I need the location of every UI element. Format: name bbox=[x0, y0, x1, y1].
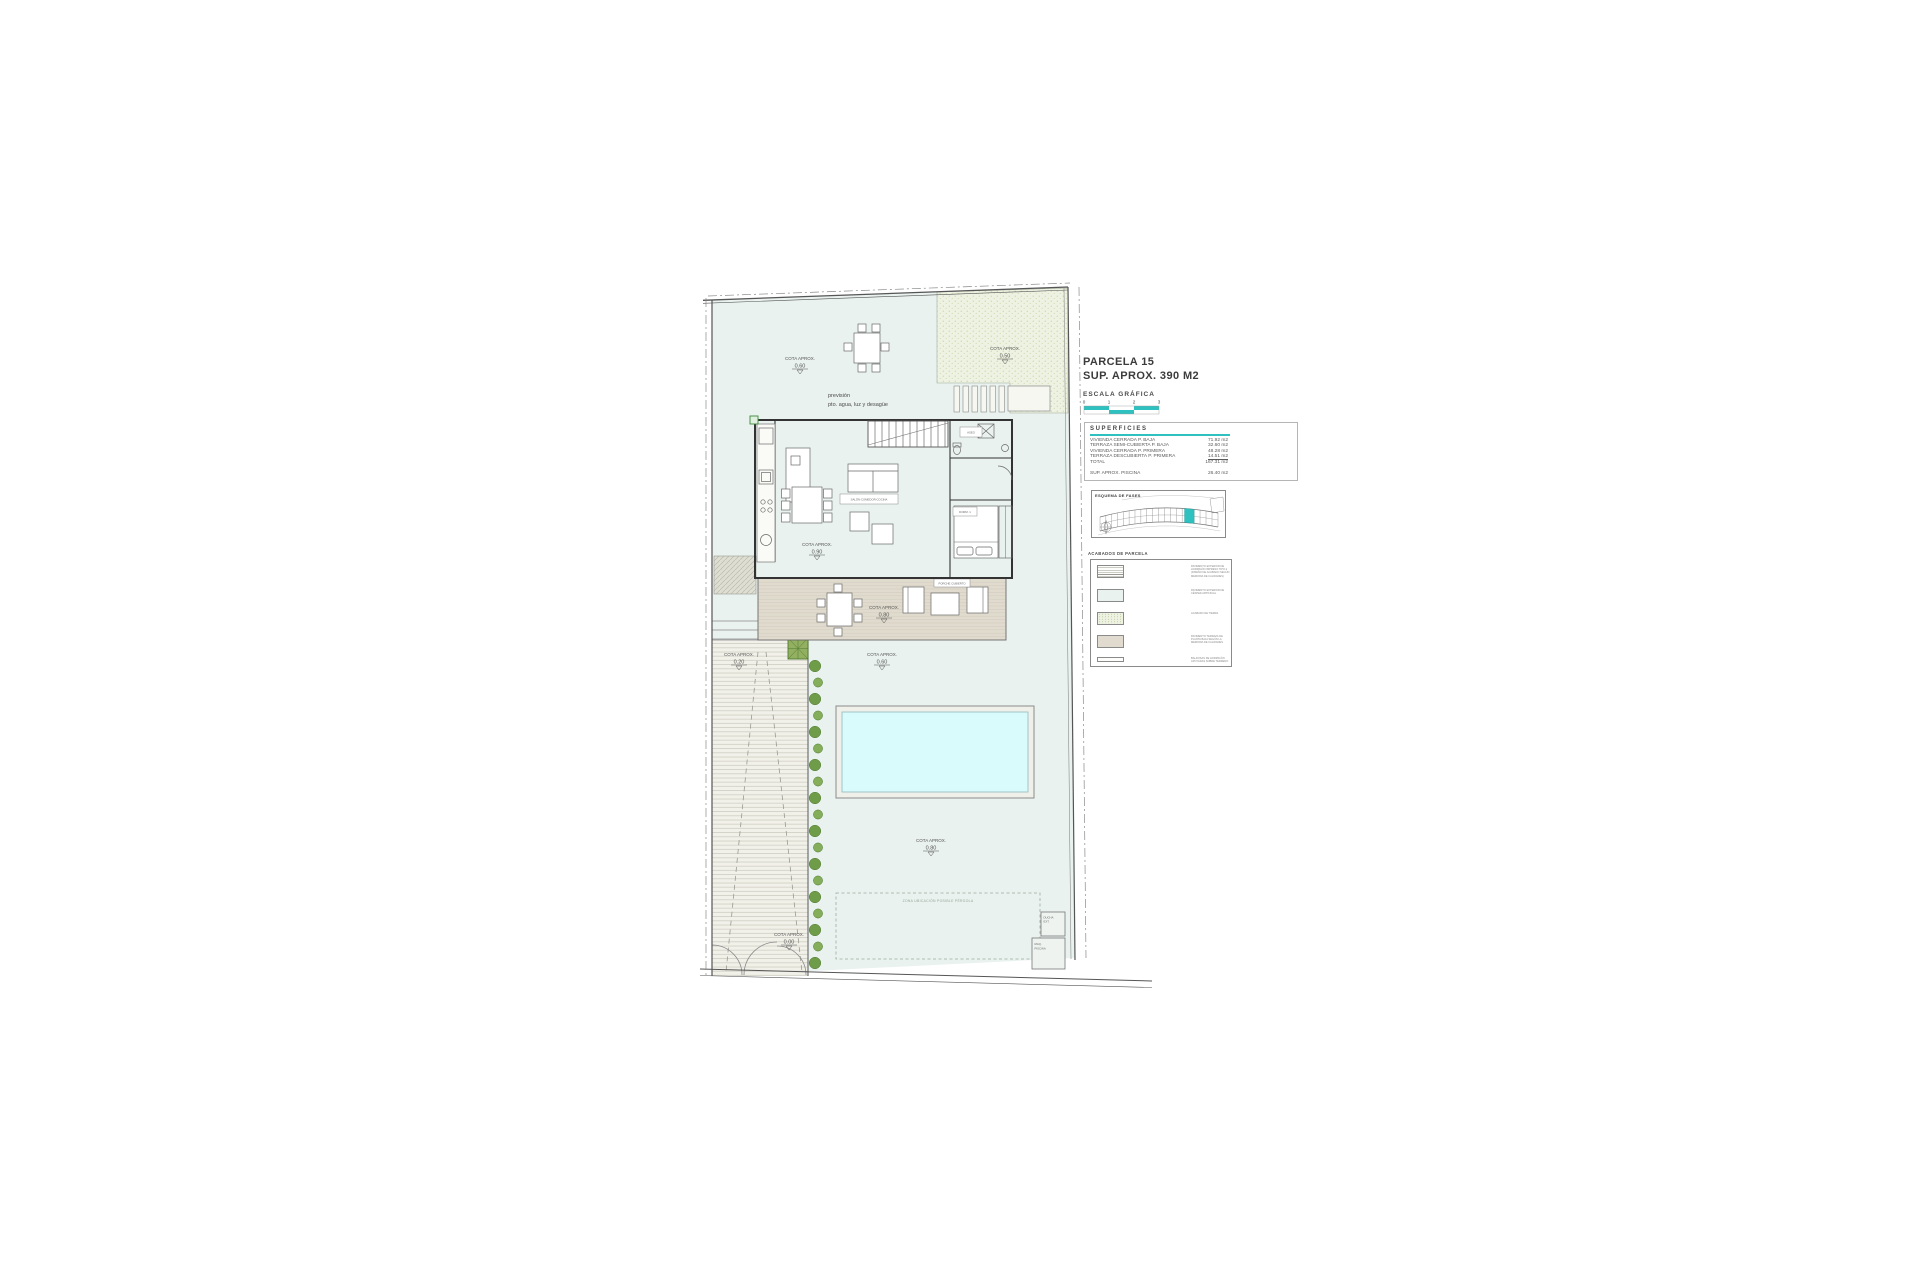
maq-piscina-box: MAQ. PISCINA bbox=[1032, 938, 1065, 969]
chair bbox=[872, 324, 880, 332]
hedge-bush bbox=[809, 660, 821, 672]
legend-swatch-terraza bbox=[1097, 635, 1124, 648]
hedge-bush bbox=[809, 858, 821, 870]
hedge-bush bbox=[813, 744, 822, 753]
svg-text:3: 3 bbox=[1158, 400, 1161, 405]
coffee-table bbox=[850, 512, 869, 531]
chair bbox=[782, 513, 791, 522]
svg-text:SALÓN-COMEDOR-COCINA: SALÓN-COMEDOR-COCINA bbox=[851, 497, 888, 502]
hedge-bush bbox=[813, 678, 822, 687]
legend-heading: ACABADOS DE PARCELA bbox=[1088, 551, 1148, 556]
sheet: ZONA UBICACIÓN POSIBLE PÉRGOLA DUCHA EXT… bbox=[0, 0, 1920, 1280]
legend-swatch-hormigon bbox=[1097, 565, 1124, 578]
svg-text:previsión: previsión bbox=[828, 393, 850, 399]
svg-text:MAQ.: MAQ. bbox=[1035, 942, 1042, 946]
legend: PAVIMENTO EXTERIOR DE HORMIGÓN IMPRESO T… bbox=[1090, 559, 1232, 667]
svg-text:0.00: 0.00 bbox=[784, 940, 795, 946]
hedge-bush bbox=[813, 810, 822, 819]
hedge-bush bbox=[809, 891, 821, 903]
svg-text:ASEO: ASEO bbox=[967, 431, 976, 435]
svg-text:PORCHE CUBIERTO: PORCHE CUBIERTO bbox=[938, 581, 966, 585]
hedge-bush bbox=[813, 843, 822, 852]
location-map: ESQUEMA DE FASES bbox=[1091, 490, 1226, 538]
svg-text:0.20: 0.20 bbox=[734, 660, 745, 666]
chair bbox=[782, 489, 791, 498]
svg-text:DORM. 1: DORM. 1 bbox=[959, 510, 971, 514]
chair bbox=[817, 614, 825, 622]
chair bbox=[872, 364, 880, 372]
chair bbox=[858, 364, 866, 372]
chair bbox=[834, 584, 842, 592]
porch-label-box: PORCHE CUBIERTO bbox=[934, 579, 970, 587]
svg-text:COTA APROX.: COTA APROX. bbox=[869, 605, 899, 610]
svg-text:PISCINA: PISCINA bbox=[1035, 947, 1046, 951]
entry-pad bbox=[954, 386, 960, 412]
pergola-zone-label: ZONA UBICACIÓN POSIBLE PÉRGOLA bbox=[903, 898, 974, 903]
hedge-bush bbox=[813, 711, 822, 720]
entry-pad bbox=[963, 386, 969, 412]
svg-text:pto. agua, luz y desagüe: pto. agua, luz y desagüe bbox=[828, 402, 888, 408]
svg-text:0.60: 0.60 bbox=[877, 660, 888, 666]
hedge-bush bbox=[809, 693, 821, 705]
legend-swatch-cesped bbox=[1097, 589, 1124, 602]
superficies-rule bbox=[1090, 434, 1230, 437]
hedge-bush bbox=[809, 924, 821, 936]
hedge-bush bbox=[809, 759, 821, 771]
entry-pad-large bbox=[1008, 386, 1050, 411]
kitchen bbox=[757, 424, 775, 562]
legend-swatch-tierra bbox=[1097, 612, 1124, 625]
chair bbox=[881, 343, 889, 351]
walkway bbox=[714, 556, 756, 594]
chair bbox=[834, 628, 842, 636]
graphic-scale-bar: 0 1 2 3 bbox=[1080, 398, 1172, 418]
chair bbox=[824, 501, 833, 510]
hedge-bush bbox=[813, 777, 822, 786]
svg-text:COTA APROX.: COTA APROX. bbox=[802, 542, 832, 547]
svg-text:0.90: 0.90 bbox=[812, 550, 823, 556]
drawing-title: PARCELA 15 SUP. APROX. 390 M2 bbox=[1083, 356, 1199, 383]
ducha-box: DUCHA EXT. bbox=[1041, 912, 1065, 936]
svg-text:2: 2 bbox=[1133, 400, 1136, 405]
stairs bbox=[868, 421, 948, 447]
svg-text:COTA APROX.: COTA APROX. bbox=[785, 356, 815, 361]
table-row-total: TOTAL167.31 m2 bbox=[1090, 460, 1228, 465]
svg-text:COTA APROX.: COTA APROX. bbox=[867, 652, 897, 657]
chair bbox=[782, 501, 791, 510]
svg-text:COTA APROX.: COTA APROX. bbox=[990, 346, 1020, 351]
parcel-name: PARCELA 15 bbox=[1083, 356, 1199, 370]
chair bbox=[844, 343, 852, 351]
legend-swatch-baldosa bbox=[1097, 657, 1124, 662]
map-heading: ESQUEMA DE FASES bbox=[1095, 493, 1141, 498]
highlighted-parcel bbox=[1185, 508, 1195, 523]
side-table bbox=[872, 524, 893, 544]
entry-pad bbox=[990, 386, 996, 412]
salon-label-box: SALÓN-COMEDOR-COCINA bbox=[840, 494, 898, 504]
superficies-table: SUPERFICIES VIVIENDA CERRADA P. BAJA71.9… bbox=[1084, 422, 1298, 481]
svg-text:COTA APROX.: COTA APROX. bbox=[724, 652, 754, 657]
hedge-bush bbox=[813, 909, 822, 918]
piscina-row: SUP. APROX. PISCINA26.40 m2 bbox=[1090, 471, 1228, 476]
chair bbox=[854, 599, 862, 607]
svg-text:0.60: 0.60 bbox=[795, 364, 806, 370]
svg-text:0.80: 0.80 bbox=[926, 846, 937, 852]
svg-text:COTA APROX.: COTA APROX. bbox=[916, 838, 946, 843]
svg-text:1: 1 bbox=[1108, 400, 1111, 405]
svg-text:COTA APROX.: COTA APROX. bbox=[774, 932, 804, 937]
chair bbox=[817, 599, 825, 607]
pool bbox=[836, 706, 1034, 798]
dining-set bbox=[782, 487, 833, 523]
driveway bbox=[712, 640, 808, 976]
superficies-heading: SUPERFICIES bbox=[1090, 426, 1292, 432]
hedge-bush bbox=[813, 942, 822, 951]
svg-text:EXT.: EXT. bbox=[1044, 920, 1050, 924]
chair bbox=[824, 489, 833, 498]
svg-text:0: 0 bbox=[1083, 400, 1086, 405]
hedge-bush bbox=[809, 825, 821, 837]
parcel-area: SUP. APROX. 390 M2 bbox=[1083, 370, 1199, 384]
sofa bbox=[848, 464, 898, 492]
svg-text:0.50: 0.50 bbox=[1000, 354, 1011, 360]
hedge-bush bbox=[813, 876, 822, 885]
entry-pad bbox=[981, 386, 987, 412]
chair bbox=[854, 614, 862, 622]
tree-planter bbox=[788, 638, 808, 659]
hedge-bush bbox=[809, 957, 821, 969]
entry-pad bbox=[999, 386, 1005, 412]
svg-text:0.80: 0.80 bbox=[879, 613, 890, 619]
chair bbox=[858, 324, 866, 332]
scale-label: ESCALA GRÁFICA bbox=[1083, 391, 1155, 398]
hedge-bush bbox=[809, 726, 821, 738]
entry-pad bbox=[972, 386, 978, 412]
chair bbox=[824, 513, 833, 522]
utility-square bbox=[750, 416, 758, 424]
hedge-bush bbox=[809, 792, 821, 804]
